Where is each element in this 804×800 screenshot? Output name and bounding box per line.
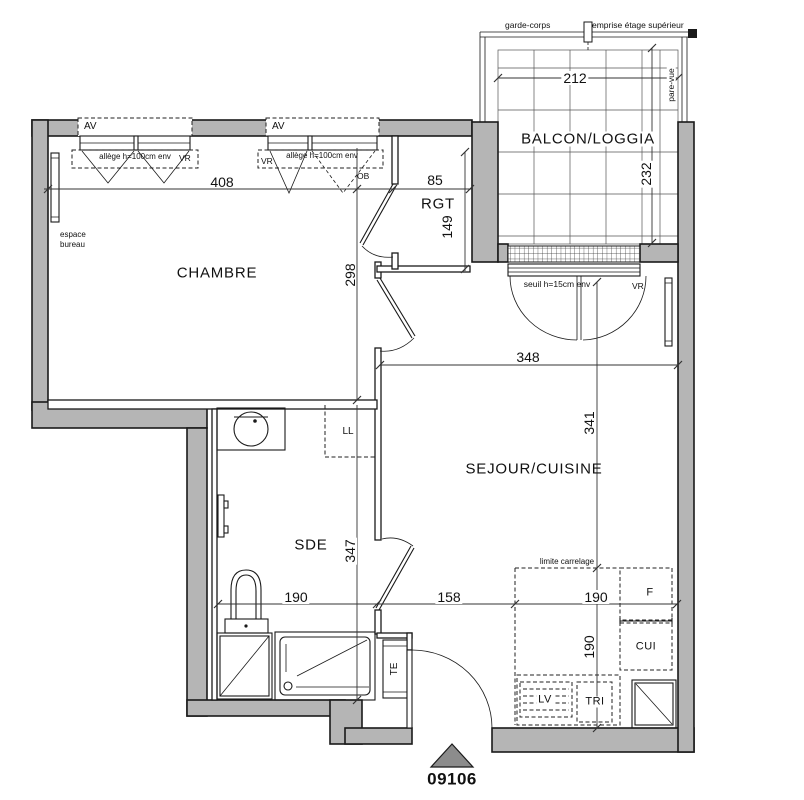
av-label-2: AV — [272, 122, 285, 132]
electrical-panel-label: TE — [390, 663, 400, 676]
sde-towel-radiator — [218, 495, 228, 537]
av-label-1: AV — [84, 122, 97, 132]
kitchen-unit-label: CUI — [636, 642, 656, 653]
dim-chambre-width: 408 — [210, 175, 233, 189]
toilet — [225, 570, 268, 633]
dim-sejour-width: 348 — [514, 350, 541, 364]
room-label-sejour: SEJOUR/CUISINE — [465, 462, 602, 477]
dim-sde-height: 347 — [343, 537, 357, 564]
pare-vue-label: pare-vue — [667, 66, 676, 104]
balcony-threshold — [508, 246, 640, 262]
dim-sejour-height: 341 — [582, 409, 596, 436]
dishwasher-label: LV — [536, 695, 554, 706]
chambre-radiator — [51, 153, 59, 222]
waste-sorting-label: TRI — [583, 697, 606, 708]
dim-kitchen-width: 190 — [582, 590, 609, 604]
balcony-french-doors — [508, 264, 646, 340]
sejour-radiator — [665, 278, 672, 346]
dim-balcon-width: 212 — [561, 71, 588, 85]
fridge-label: F — [646, 588, 653, 599]
dim-balcon-height: 232 — [639, 160, 653, 187]
room-label-sde: SDE — [294, 538, 327, 553]
allege-label-2: allège h=100cm env — [286, 152, 358, 160]
sde-cabinet — [217, 633, 272, 699]
dim-rgt-height: 149 — [440, 215, 454, 238]
dim-kitchen-height: 190 — [582, 633, 596, 660]
dim-sde-width: 190 — [282, 590, 309, 604]
allege-label-1: allège h=100cm env — [99, 153, 171, 161]
shower — [275, 632, 375, 700]
sde-door — [376, 538, 414, 610]
rgt-door — [360, 184, 396, 257]
floor-plan-linework — [0, 0, 804, 800]
entry-marker-triangle — [431, 744, 473, 767]
espace-bureau-label: espace bureau — [60, 230, 86, 249]
washbasin — [217, 408, 285, 450]
room-label-rgt: RGT — [421, 197, 455, 212]
room-label-balcon: BALCON/LOGGIA — [519, 132, 657, 147]
limite-carrelage-label: limite carrelage — [538, 558, 596, 566]
floor-plan: garde-corps emprise étage supérieur pare… — [0, 0, 804, 800]
chambre-door — [377, 278, 415, 351]
vr-label-2: VR — [261, 157, 273, 166]
entry-door — [407, 650, 492, 728]
vr-label-3: VR — [632, 282, 644, 291]
emprise-label: emprise étage supérieur — [592, 21, 684, 30]
room-label-chambre: CHAMBRE — [177, 266, 258, 281]
washing-machine-label: LL — [342, 427, 353, 437]
vr-label-1: VR — [179, 154, 191, 163]
dim-rgt-width: 85 — [427, 173, 443, 187]
dim-hall-width: 158 — [435, 590, 462, 604]
kitchen-duct — [632, 680, 676, 728]
lot-number: 09106 — [427, 771, 477, 788]
ob-label: OB — [357, 172, 369, 181]
dim-chambre-height: 298 — [343, 263, 357, 286]
seuil-label: seuil h=15cm env — [524, 280, 590, 289]
garde-corps-label: garde-corps — [505, 21, 550, 30]
